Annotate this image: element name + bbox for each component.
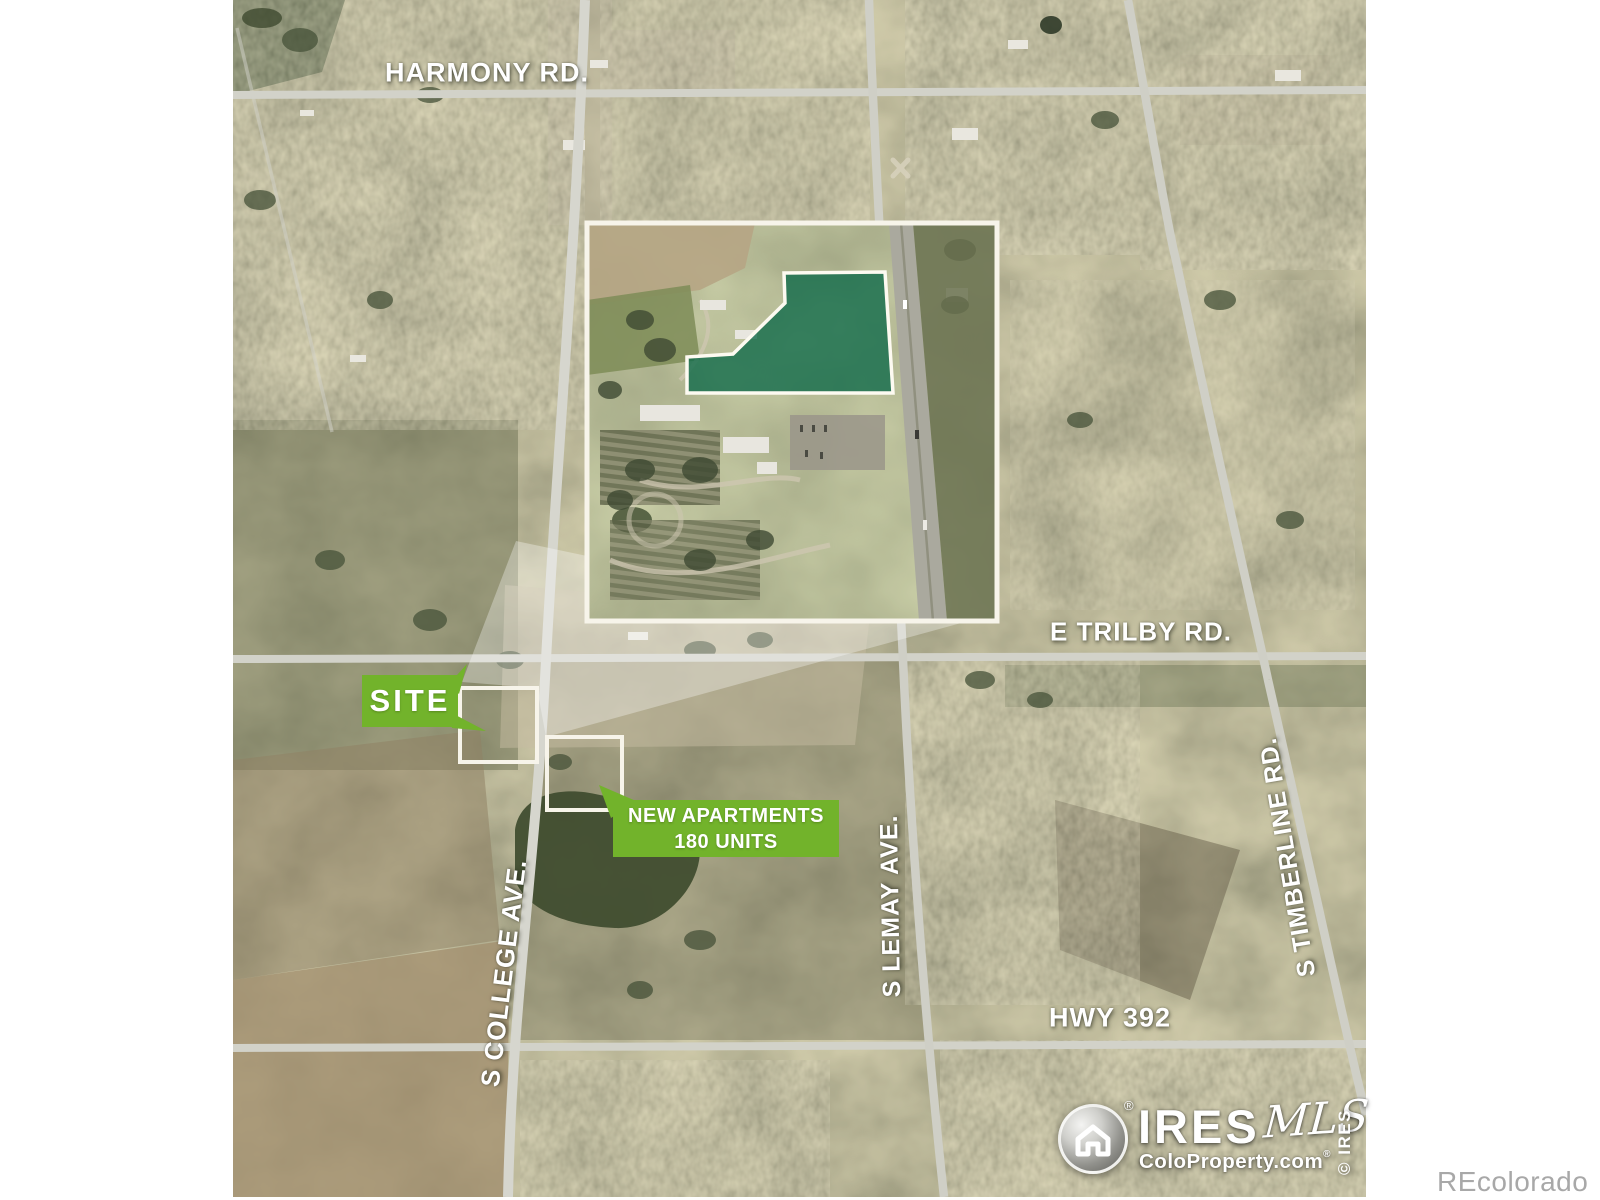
coloproperty-text: ColoProperty.com — [1139, 1150, 1323, 1173]
ires-copyright: © IRES — [1335, 1109, 1355, 1175]
road-hwy392-line — [233, 1044, 1366, 1048]
site-callout: SITE — [362, 675, 458, 727]
road-harmony-line — [233, 90, 1366, 95]
ires-brand: IRES — [1138, 1099, 1260, 1154]
inset-zoom-content — [587, 223, 997, 621]
ires-watermark: ® IRES MLS ColoProperty.com® — [1058, 1098, 1364, 1188]
listing-photo: HARMONY RD. E TRILBY RD. HWY 392 S COLLE… — [0, 0, 1600, 1200]
road-label-lemay: S LEMAY AVE. — [875, 814, 907, 997]
ires-registered-mark: ® — [1124, 1098, 1134, 1113]
apartments-callout: NEW APARTMENTS 180 UNITS — [613, 800, 839, 857]
road-label-harmony: HARMONY RD. — [385, 58, 589, 89]
coloproperty-registered-mark: ® — [1323, 1149, 1331, 1160]
ires-globe-icon — [1058, 1104, 1128, 1174]
house-icon — [1068, 1116, 1118, 1164]
road-label-trilby: E TRILBY RD. — [1050, 617, 1232, 648]
road-label-hwy392: HWY 392 — [1049, 1003, 1171, 1034]
coloproperty-tagline: ColoProperty.com® — [1139, 1150, 1331, 1174]
apartments-callout-line1: NEW APARTMENTS — [628, 803, 824, 829]
site-callout-label: SITE — [370, 683, 451, 719]
recolorado-watermark: REcolorado — [1437, 1166, 1588, 1198]
apartments-callout-line2: 180 UNITS — [674, 829, 777, 855]
satellite-basemap — [233, 0, 1366, 1197]
